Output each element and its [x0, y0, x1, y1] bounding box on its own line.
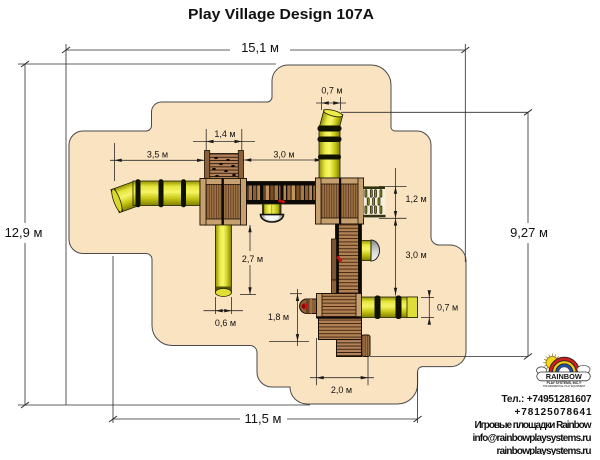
svg-text:1,8 м: 1,8 м [268, 312, 289, 322]
svg-text:3,0 м: 3,0 м [273, 150, 294, 160]
svg-text:1,4 м: 1,4 м [214, 129, 235, 139]
svg-text:rainbowplaysystems.ru: rainbowplaysystems.ru [497, 446, 592, 455]
svg-text:11,5 м: 11,5 м [245, 411, 282, 426]
svg-text:3,0 м: 3,0 м [406, 250, 427, 260]
svg-text:+78125078641: +78125078641 [515, 407, 592, 418]
svg-text:3,5 м: 3,5 м [147, 150, 168, 160]
svg-text:Игровые площадки Rainbow: Игровые площадки Rainbow [475, 420, 592, 431]
svg-text:2,7 м: 2,7 м [242, 254, 263, 264]
svg-text:9,27 м: 9,27 м [510, 225, 548, 240]
svg-text:15,1 м: 15,1 м [241, 40, 279, 55]
svg-text:Тел.: +74951281607: Тел.: +74951281607 [502, 394, 592, 405]
svg-text:12,9 м: 12,9 м [5, 225, 43, 240]
svg-text:0,7 м: 0,7 м [321, 86, 342, 96]
svg-text:2,0 м: 2,0 м [331, 385, 352, 395]
svg-text:Play Village Design 107A: Play Village Design 107A [188, 7, 375, 23]
svg-text:1,2 м: 1,2 м [406, 194, 427, 204]
svg-text:info@rainbowplaysystems.ru: info@rainbowplaysystems.ru [473, 433, 592, 444]
svg-text:THE RESIDENTIAL PLAY EQUIPMENT: THE RESIDENTIAL PLAY EQUIPMENT [543, 385, 586, 388]
svg-text:0,7 м: 0,7 м [437, 303, 458, 313]
svg-text:0,6 м: 0,6 м [215, 318, 236, 328]
